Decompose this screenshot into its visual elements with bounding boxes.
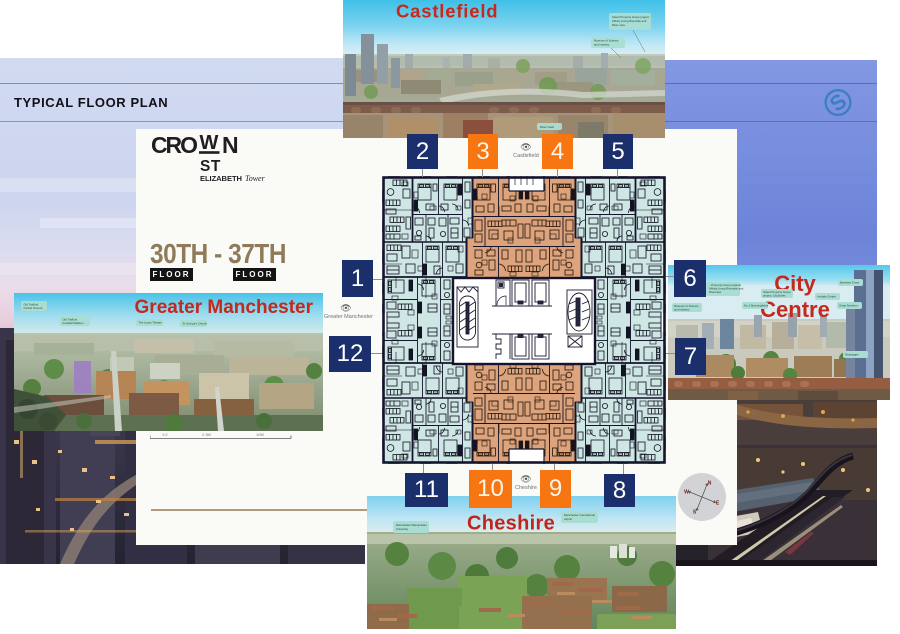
svg-text:Arndale Centre: Arndale Centre [817, 295, 836, 299]
svg-text:Greater Manchester: Greater Manchester [135, 297, 314, 318]
svg-text:CRO: CRO [151, 132, 198, 158]
svg-text:ST: ST [200, 158, 221, 175]
svg-text:1:2: 1:2 [162, 432, 168, 437]
svg-text:W: W [200, 132, 219, 154]
svg-text:Football Stadium: Football Stadium [63, 321, 85, 325]
svg-text:2 5M: 2 5M [202, 432, 211, 437]
svg-text:No.1 Spinningfields: No.1 Spinningfields [744, 304, 769, 308]
svg-text:Tower: Tower [245, 174, 266, 183]
svg-text:W: W [684, 490, 689, 496]
svg-text:The Lowry Theatre: The Lowry Theatre [139, 321, 163, 325]
svg-text:River view: River view [612, 23, 626, 27]
svg-text:Riverview: Riverview [709, 290, 722, 294]
svg-text:Cheshire: Cheshire [467, 513, 555, 535]
svg-text:ELIZABETH: ELIZABETH [200, 174, 242, 183]
svg-text:and Industry: and Industry [594, 43, 610, 47]
svg-text:project: CitySuites: project: CitySuites [763, 294, 786, 298]
svg-text:University: University [396, 527, 409, 531]
svg-text:Beetham Tower: Beetham Tower [840, 281, 859, 285]
svg-text:River Irwell: River Irwell [540, 125, 554, 129]
svg-text:Airport: Airport [564, 517, 572, 521]
svg-text:N: N [222, 132, 239, 158]
svg-text:10M: 10M [256, 432, 264, 437]
svg-text:Great Northern: Great Northern [839, 304, 858, 308]
svg-text:Centre: Centre [760, 297, 830, 322]
svg-text:Cricket Ground: Cricket Ground [24, 306, 43, 310]
svg-text:Castlefield: Castlefield [396, 1, 498, 22]
svg-text:N: N [708, 481, 712, 487]
svg-text:and Industry: and Industry [674, 308, 690, 312]
svg-text:St George's Church: St George's Church [183, 322, 208, 326]
svg-text:Deansgate: Deansgate [845, 353, 859, 357]
